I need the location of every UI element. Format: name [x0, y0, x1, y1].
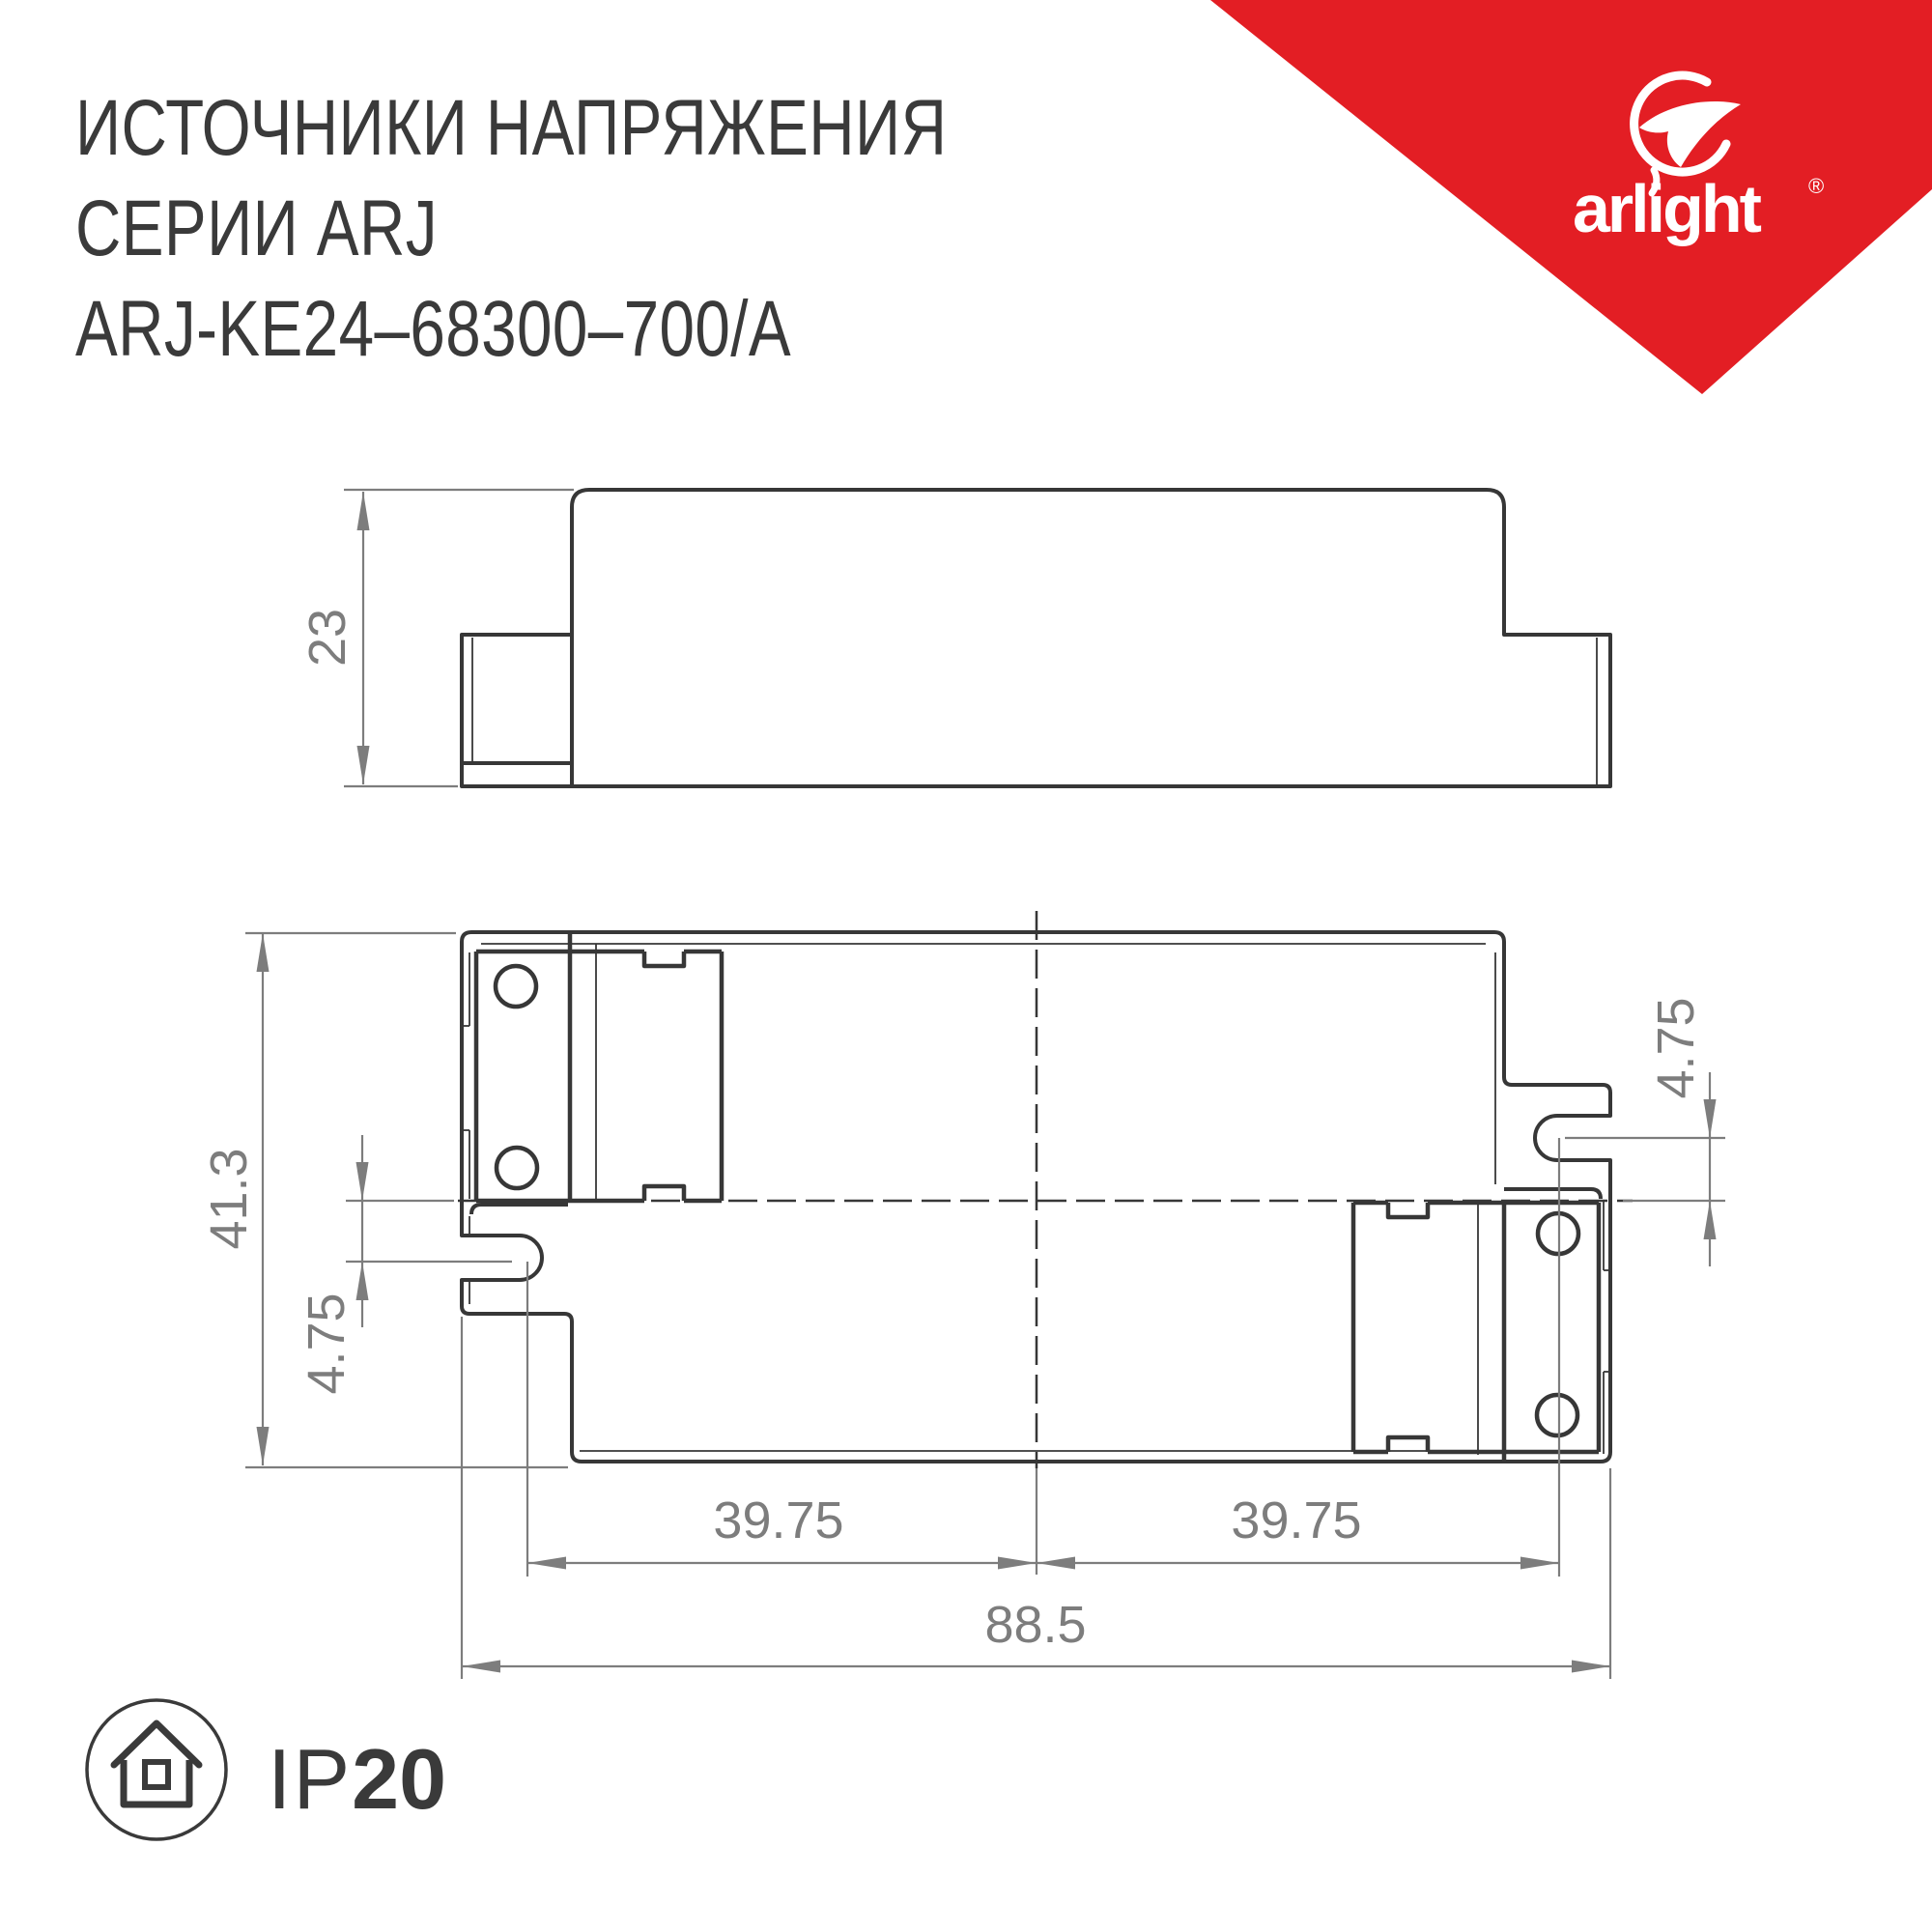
product-model-title: ARJ-KE24–68300–700/A [75, 284, 791, 375]
bracket-bottom-right-notch-top [1388, 1203, 1428, 1217]
bracket-top-left [476, 932, 722, 1201]
brand-banner: arlight ® [1210, 0, 1932, 394]
dimension-label-23: 23 [298, 609, 356, 667]
dimension-slot-offset-left [346, 1135, 512, 1327]
screw-hole [1537, 1395, 1577, 1435]
bracket-bottom-right-notch-bottom [1388, 1437, 1428, 1452]
ip-rating-prefix: IP [268, 1731, 352, 1827]
ip-rating-value: 20 [352, 1731, 446, 1827]
registered-trademark: ® [1808, 174, 1824, 198]
screw-hole [496, 966, 536, 1007]
dimension-label-39-75-right: 39.75 [1231, 1492, 1361, 1549]
screw-hole [497, 1148, 537, 1188]
dimension-height-23 [344, 490, 574, 786]
bracket-top-left-notch-bottom [644, 1186, 684, 1201]
dimension-label-4-75-right: 4.75 [1647, 997, 1705, 1098]
dimension-label-41-3: 41.3 [200, 1148, 258, 1249]
page-title-line-1: ИСТОЧНИКИ НАПРЯЖЕНИЯ [75, 83, 947, 174]
bracket-top-left-notch-top [644, 952, 684, 966]
dimension-slot-offset-right [1565, 1072, 1725, 1266]
dimension-slot-span [527, 1138, 1559, 1577]
dimension-label-88-5: 88.5 [984, 1596, 1086, 1654]
left-flange-fold [471, 1205, 568, 1214]
dimension-annotations [245, 490, 1725, 1679]
ip-rating: IP20 [268, 1730, 446, 1829]
logo-wordmark: arlight [1573, 171, 1762, 246]
page-title-line-2: СЕРИИ ARJ [75, 184, 438, 274]
datasheet-page: arlight ® [0, 0, 1932, 1932]
bracket-bottom-right [1353, 1203, 1599, 1462]
top-view-drawing [458, 911, 1633, 1468]
dimension-label-39-75-left: 39.75 [713, 1492, 843, 1549]
house-in-circle-icon [87, 1700, 226, 1839]
dimension-label-4-75-left: 4.75 [298, 1293, 355, 1394]
side-view-drawing [462, 490, 1610, 786]
side-view-outline [462, 490, 1610, 786]
right-flange-fold [1504, 1189, 1601, 1199]
